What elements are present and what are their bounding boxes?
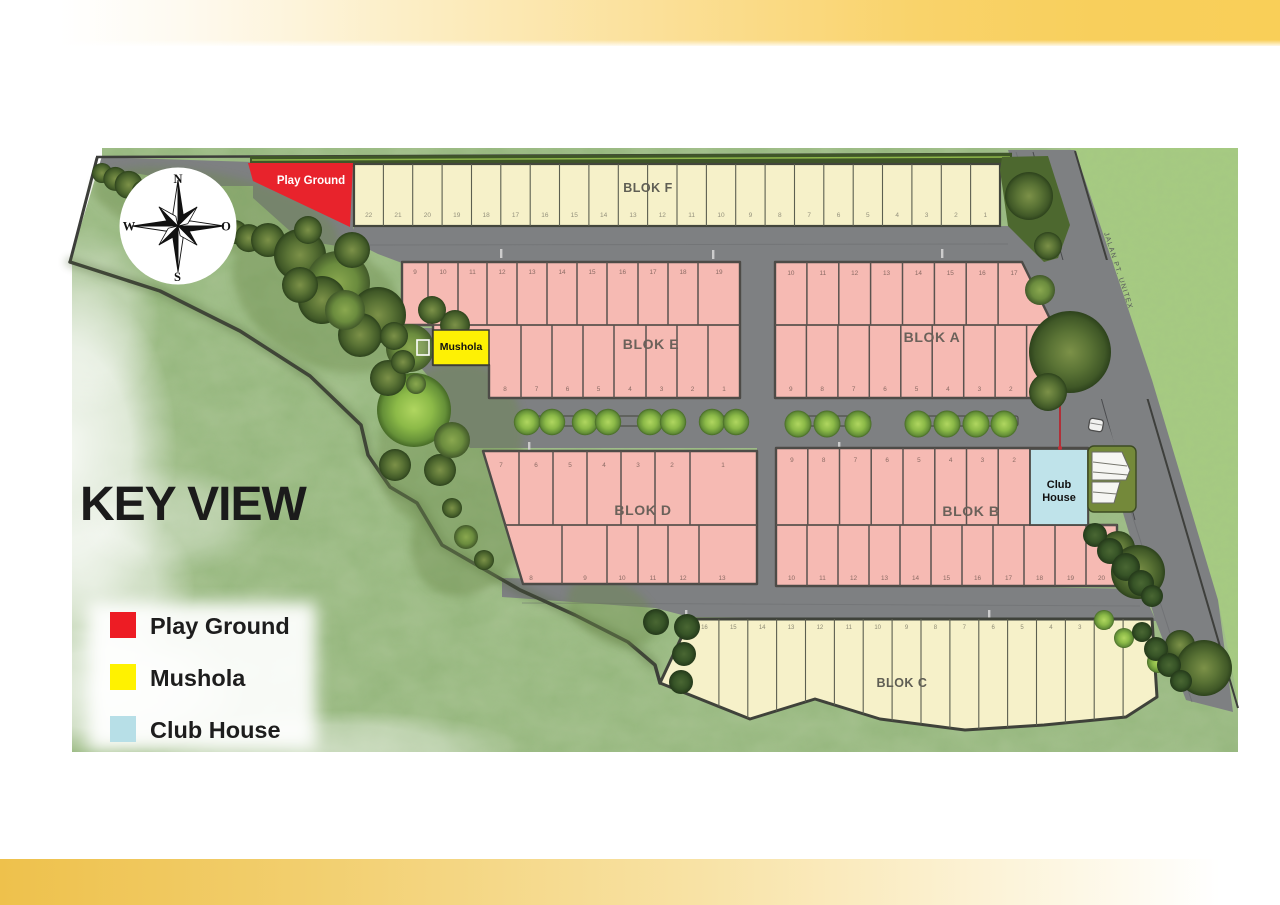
svg-text:10: 10 (439, 269, 447, 276)
svg-text:13: 13 (629, 212, 637, 219)
svg-text:20: 20 (1098, 575, 1106, 582)
svg-text:16: 16 (541, 212, 549, 219)
svg-text:1: 1 (722, 386, 726, 393)
svg-text:6: 6 (837, 212, 841, 219)
svg-text:3: 3 (981, 457, 985, 464)
svg-text:6: 6 (883, 386, 887, 393)
svg-text:6: 6 (566, 386, 570, 393)
svg-text:15: 15 (730, 625, 737, 631)
svg-text:10: 10 (787, 270, 795, 277)
svg-text:5: 5 (866, 212, 870, 219)
svg-text:4: 4 (628, 386, 632, 393)
svg-text:18: 18 (1036, 575, 1044, 582)
svg-text:9: 9 (583, 575, 587, 582)
svg-text:19: 19 (715, 269, 723, 276)
svg-text:16: 16 (619, 269, 627, 276)
svg-text:House: House (1042, 492, 1076, 504)
svg-text:8: 8 (503, 386, 507, 393)
svg-text:11: 11 (846, 625, 853, 631)
svg-text:4: 4 (946, 386, 950, 393)
svg-text:4: 4 (895, 212, 899, 219)
svg-text:12: 12 (817, 625, 824, 631)
svg-text:Club: Club (1047, 479, 1072, 491)
svg-text:13: 13 (788, 625, 795, 631)
svg-text:14: 14 (558, 269, 566, 276)
svg-text:7: 7 (499, 462, 503, 469)
svg-text:12: 12 (679, 575, 687, 582)
svg-text:4: 4 (949, 457, 953, 464)
svg-text:2: 2 (954, 212, 958, 219)
svg-text:22: 22 (365, 212, 373, 219)
svg-text:5: 5 (917, 457, 921, 464)
svg-text:N: N (173, 172, 182, 186)
svg-text:6: 6 (885, 457, 889, 464)
svg-text:7: 7 (807, 212, 811, 219)
svg-text:3: 3 (660, 386, 664, 393)
svg-text:5: 5 (568, 462, 572, 469)
svg-text:10: 10 (788, 575, 796, 582)
svg-text:8: 8 (778, 212, 782, 219)
svg-text:S: S (174, 270, 181, 284)
svg-text:15: 15 (571, 212, 579, 219)
svg-text:18: 18 (483, 212, 491, 219)
svg-text:Play Ground: Play Ground (150, 613, 290, 639)
svg-text:10: 10 (874, 625, 881, 631)
svg-text:3: 3 (925, 212, 929, 219)
svg-text:11: 11 (469, 269, 476, 276)
svg-text:BLOK E: BLOK E (623, 336, 680, 352)
svg-text:12: 12 (498, 269, 506, 276)
svg-text:11: 11 (819, 270, 826, 277)
svg-text:11: 11 (688, 212, 695, 219)
svg-text:13: 13 (718, 575, 726, 582)
svg-text:16: 16 (701, 625, 708, 631)
svg-text:2: 2 (1009, 386, 1013, 393)
svg-text:13: 13 (883, 270, 891, 277)
svg-text:Mushola: Mushola (150, 665, 246, 691)
svg-text:7: 7 (854, 457, 858, 464)
svg-text:18: 18 (679, 269, 687, 276)
svg-text:9: 9 (790, 457, 794, 464)
svg-text:Mushola: Mushola (440, 341, 483, 353)
svg-text:8: 8 (529, 575, 533, 582)
svg-text:17: 17 (512, 212, 520, 219)
svg-text:13: 13 (528, 269, 536, 276)
svg-text:9: 9 (413, 269, 417, 276)
svg-text:BLOK A: BLOK A (904, 329, 961, 345)
svg-text:7: 7 (535, 386, 539, 393)
svg-text:10: 10 (618, 575, 626, 582)
svg-text:8: 8 (822, 457, 826, 464)
svg-text:16: 16 (974, 575, 982, 582)
svg-text:BLOK B: BLOK B (942, 503, 999, 519)
svg-text:3: 3 (978, 386, 982, 393)
svg-text:21: 21 (394, 212, 402, 219)
svg-text:9: 9 (749, 212, 753, 219)
svg-text:6: 6 (534, 462, 538, 469)
svg-text:7: 7 (852, 386, 856, 393)
svg-text:9: 9 (789, 386, 793, 393)
svg-text:W: W (123, 220, 136, 234)
svg-text:19: 19 (453, 212, 461, 219)
svg-text:15: 15 (947, 270, 955, 277)
svg-text:5: 5 (597, 386, 601, 393)
svg-text:2: 2 (1012, 457, 1016, 464)
svg-text:16: 16 (979, 270, 987, 277)
svg-text:3: 3 (636, 462, 640, 469)
svg-text:15: 15 (943, 575, 951, 582)
svg-text:2: 2 (670, 462, 674, 469)
svg-text:BLOK D: BLOK D (614, 502, 671, 518)
svg-text:O: O (221, 220, 231, 234)
svg-text:Club House: Club House (150, 717, 281, 743)
svg-text:14: 14 (600, 212, 608, 219)
svg-text:Play Ground: Play Ground (277, 175, 345, 187)
svg-text:5: 5 (915, 386, 919, 393)
svg-text:11: 11 (650, 575, 657, 582)
svg-text:1: 1 (984, 212, 988, 219)
svg-text:17: 17 (1011, 270, 1019, 277)
svg-text:8: 8 (820, 386, 824, 393)
svg-text:14: 14 (912, 575, 920, 582)
svg-text:KEY VIEW: KEY VIEW (80, 478, 308, 531)
svg-text:BLOK F: BLOK F (623, 181, 673, 195)
svg-text:12: 12 (850, 575, 858, 582)
svg-text:BLOK C: BLOK C (877, 676, 928, 690)
svg-text:12: 12 (851, 270, 859, 277)
svg-text:13: 13 (881, 575, 889, 582)
svg-text:4: 4 (602, 462, 606, 469)
svg-text:1: 1 (721, 462, 725, 469)
svg-text:14: 14 (759, 625, 766, 631)
svg-text:15: 15 (588, 269, 596, 276)
svg-text:20: 20 (424, 212, 432, 219)
svg-text:12: 12 (659, 212, 667, 219)
svg-text:10: 10 (717, 212, 725, 219)
svg-text:14: 14 (915, 270, 923, 277)
svg-text:17: 17 (1005, 575, 1013, 582)
svg-text:17: 17 (649, 269, 657, 276)
svg-text:2: 2 (691, 386, 695, 393)
svg-text:11: 11 (819, 575, 826, 582)
svg-text:19: 19 (1067, 575, 1075, 582)
